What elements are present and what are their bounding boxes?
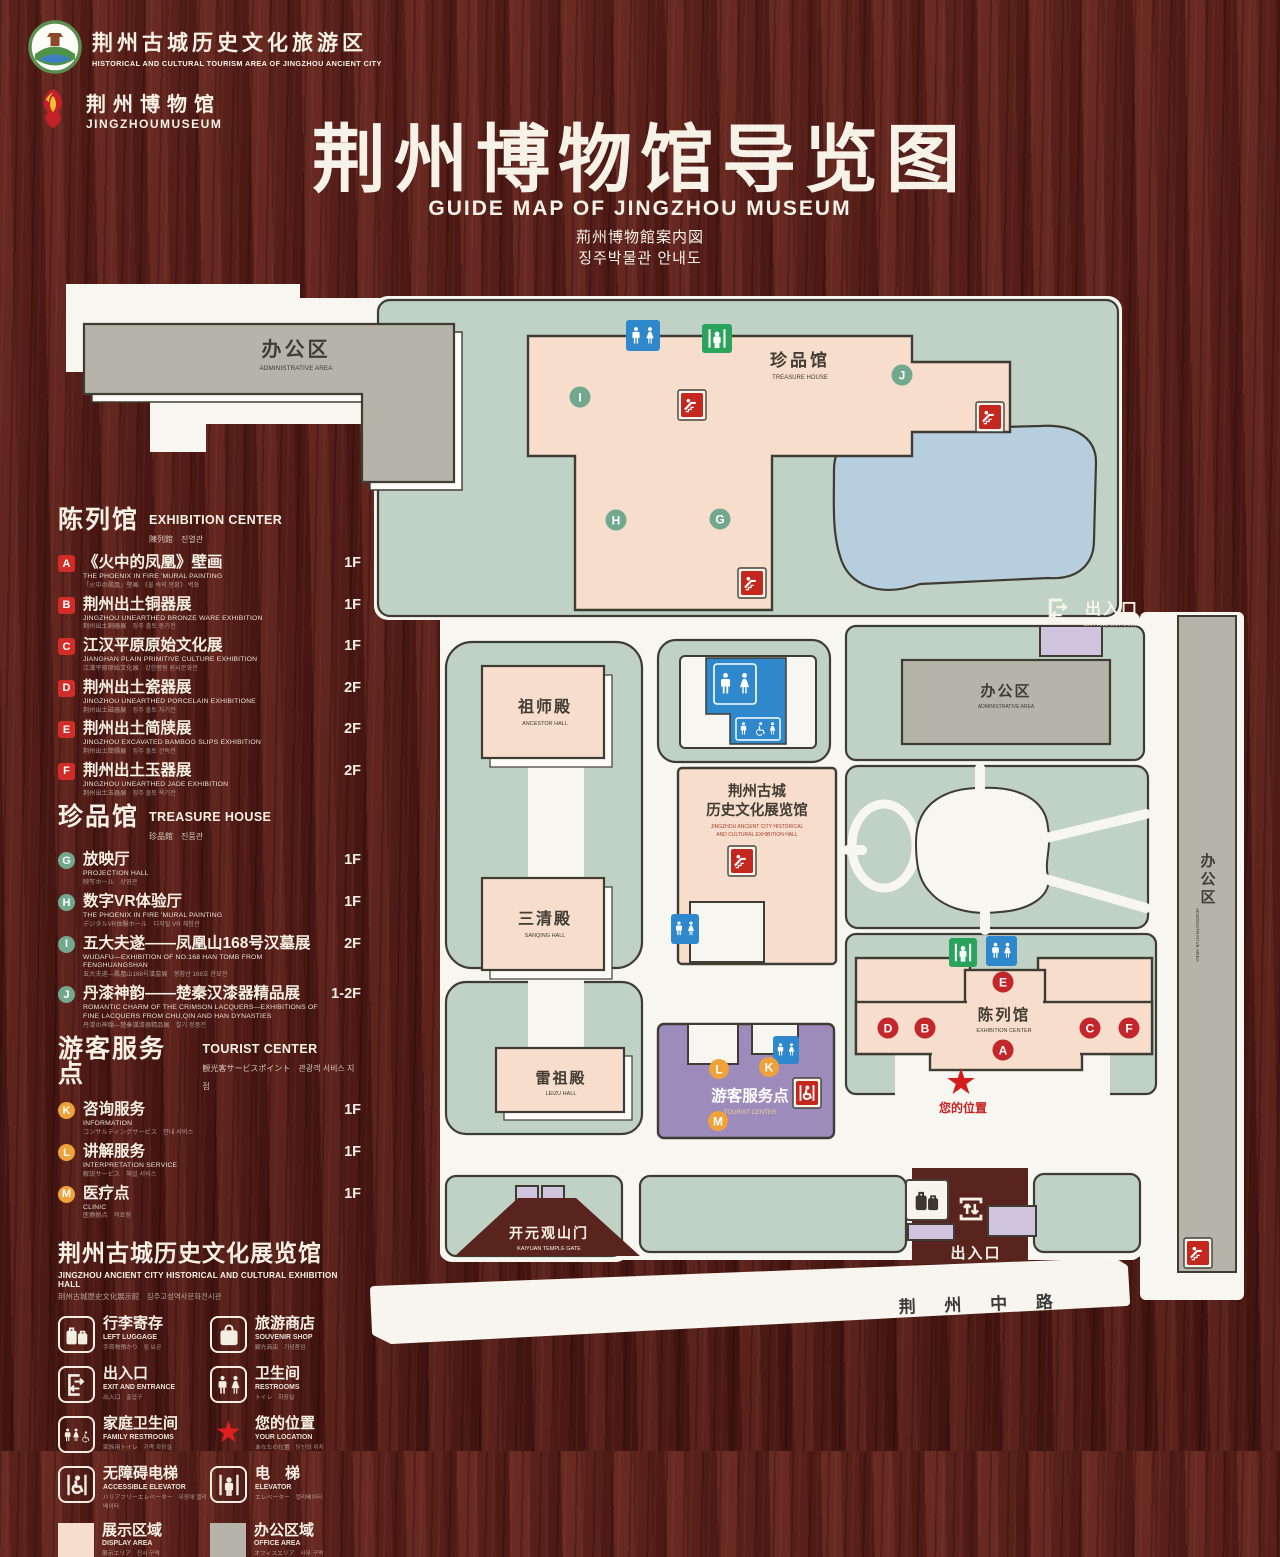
svg-text:ADMINISTRATIVE AREA: ADMINISTRATIVE AREA	[1194, 908, 1200, 963]
legend-item-i: I 五大夫遂——凤凰山168号汉墓展WUDAFU—EXHIBITION OF N…	[58, 935, 361, 979]
svg-text:L: L	[715, 1063, 722, 1077]
key-left-luggage: 行李寄存LEFT LUGGAGE手荷物預かり 짐 보관	[58, 1316, 210, 1353]
restroom-icon	[210, 1366, 247, 1403]
map-key-icons: 行李寄存LEFT LUGGAGE手荷物預かり 짐 보관 旅游商店SOUVENIR…	[58, 1316, 361, 1557]
escalator-icon	[738, 568, 766, 598]
svg-text:历史文化展览馆: 历史文化展览馆	[706, 801, 808, 819]
svg-text:EXIT AND ENTRANCE: EXIT AND ENTRANCE	[1084, 622, 1141, 628]
marker-D: D	[878, 1018, 899, 1039]
exhibition-center-label: 陈列馆	[978, 1005, 1031, 1024]
key-exit-entrance: 出入口EXIT AND ENTRANCE出入口 출입구	[58, 1366, 210, 1403]
admin-strip-building	[1178, 616, 1236, 1272]
legend-item-g: G 放映厅PROJECTION HALL映写ホール 상영관 1F	[58, 851, 361, 887]
key-elevator: 电 梯ELEVATORエレベーター 엘리베이터	[210, 1466, 360, 1510]
legend-item-e: E 荆州出土简牍展JINGZHOU EXCAVATED BAMBOO SLIPS…	[58, 720, 361, 756]
section-tourist-center: 游客服务点 TOURIST CENTER 観光客サービスポイント 관광객 서비스…	[58, 1037, 361, 1094]
marker-C: C	[1080, 1018, 1101, 1039]
svg-text:K: K	[765, 1061, 774, 1075]
admin-building-right	[902, 660, 1110, 744]
legend-panel: 陈列馆 EXHIBITION CENTER 陳列館 진열관 A 《火中的凤凰》壁…	[58, 500, 361, 1557]
key-family-restrooms: 家庭卫生间FAMILY RESTROOMS家族用トイレ 가족 화장실	[58, 1416, 210, 1453]
svg-text:F: F	[1125, 1022, 1132, 1036]
marker-G: G	[710, 509, 731, 530]
legend-item-b: B 荆州出土铜器展JINGZHOU UNEARTHED BRONZE WARE …	[58, 596, 361, 632]
family-restroom-icon	[58, 1416, 95, 1453]
marker-H: H	[606, 510, 627, 531]
key-restrooms: 卫生间RESTROOMSトイレ 화장실	[210, 1366, 360, 1403]
admin-right-label: 办公区	[980, 682, 1031, 700]
accessible-elevator-icon	[793, 1078, 821, 1108]
legend-item-h: H 数字VR体验厅THE PHOENIX IN FIRE 'MURAL PAIN…	[58, 893, 361, 929]
escalator-icon	[976, 402, 1004, 432]
marker-K: K	[759, 1057, 779, 1077]
svg-text:H: H	[612, 514, 621, 528]
marker-E: E	[993, 972, 1014, 993]
your-location-star-icon: ★	[210, 1416, 247, 1450]
svg-text:D: D	[884, 1022, 893, 1036]
svg-text:TREASURE HOUSE: TREASURE HOUSE	[772, 375, 828, 381]
exit-icon	[58, 1366, 95, 1403]
marker-I: I	[570, 387, 591, 408]
legend-item-c: C 江汉平原原始文化展JIANGHAN PLAIN PRIMITIVE CULT…	[58, 637, 361, 673]
your-location-label: 您的位置	[939, 1100, 987, 1115]
jz-hall-note: 荆州古城历史文化展览馆 JINGZHOU ANCIENT CITY HISTOR…	[58, 1234, 361, 1302]
section-exhibition-center: 陈列馆 EXHIBITION CENTER 陳列館 진열관	[58, 508, 361, 547]
exit-top-label: 出入口	[1085, 599, 1139, 618]
svg-text:A: A	[999, 1044, 1008, 1058]
corridor	[528, 756, 584, 878]
svg-text:AND CULTURAL EXHIBITION HALL: AND CULTURAL EXHIBITION HALL	[716, 832, 798, 838]
svg-text:KAIYUAN TEMPLE GATE: KAIYUAN TEMPLE GATE	[517, 1246, 581, 1252]
legend-item-f: F 荆州出土玉器展JINGZHOU UNEARTHED JADE EXHIBIT…	[58, 762, 361, 798]
key-your-location: ★ 您的位置YOUR LOCATIONあなたの位置 당신의 위치	[210, 1416, 360, 1453]
tourist-center-label: 游客服务点	[711, 1086, 789, 1105]
legend-item-k: K 咨询服务INFORMATIONコンサルティングサービス 안내 서비스 1F	[58, 1101, 361, 1137]
kaiyuan-gate-label: 开元观山门	[509, 1225, 589, 1241]
left-luggage-icon	[58, 1316, 95, 1353]
display-area-swatch	[58, 1523, 94, 1557]
legend-item-m: M 医疗点CLINIC医療拠点 의료점 1F	[58, 1185, 361, 1221]
section-title: 陈列馆	[58, 508, 139, 533]
jz-hall-label: 荆州古城	[728, 782, 786, 800]
svg-text:ADMINISTRATIVE AREA: ADMINISTRATIVE AREA	[259, 365, 333, 372]
restroom-icon	[671, 914, 699, 944]
svg-text:ADMINISTRATIVE AREA: ADMINISTRATIVE AREA	[978, 704, 1035, 710]
left-luggage-icon	[906, 1180, 948, 1220]
admin-tl-label: 办公区	[262, 337, 331, 361]
leizu-hall-label: 雷祖殿	[535, 1069, 586, 1087]
legend-item-l: L 讲解服务INTERPRETATION SERVICE解説サービス 해설 서비…	[58, 1143, 361, 1179]
svg-text:SANQING HALL: SANQING HALL	[525, 933, 566, 939]
office-area-swatch	[210, 1523, 246, 1557]
restroom-icon	[773, 1036, 799, 1064]
treasure-label: 珍品馆	[770, 350, 830, 370]
souvenir-shop-icon	[210, 1316, 247, 1353]
restroom-icon	[986, 936, 1017, 966]
marker-L: L	[709, 1059, 729, 1079]
key-accessible-elevator: 无障碍电梯ACCESSIBLE ELEVATORバリアフリーエレベーター 무장애…	[58, 1466, 210, 1510]
your-location-star-icon: ★	[945, 1061, 977, 1102]
svg-text:C: C	[1086, 1022, 1095, 1036]
svg-text:JINGZHOU ANCIENT CITY HISTORIC: JINGZHOU ANCIENT CITY HISTORICAL	[711, 824, 804, 830]
svg-text:B: B	[921, 1022, 930, 1036]
item-badge: A	[58, 555, 75, 572]
svg-text:TOURIST CENTER: TOURIST CENTER	[724, 1110, 777, 1116]
marker-F: F	[1119, 1018, 1140, 1039]
floor-label: 1F	[344, 555, 361, 571]
svg-text:EXHIBITION CENTER: EXHIBITION CENTER	[976, 1028, 1031, 1034]
svg-text:G: G	[715, 513, 724, 527]
marker-B: B	[915, 1018, 936, 1039]
escalator-icon	[1184, 1238, 1212, 1268]
svg-text:J: J	[899, 369, 906, 383]
sanqing-hall-label: 三清殿	[518, 910, 572, 928]
legend-item-j: J 丹漆神韵——楚秦汉漆器精品展ROMANTIC CHARM OF THE CR…	[58, 985, 361, 1029]
legend-item-a: A 《火中的凤凰》壁画THE PHOENIX IN FIRE 'MURAL PA…	[58, 554, 361, 590]
marker-A: A	[993, 1040, 1014, 1061]
legend-item-d: D 荆州出土瓷器展JINGZHOU UNEARTHED PORCELAIN EX…	[58, 679, 361, 715]
key-office-area: 办公区域OFFICE AREAオフィスエリア 사무 구역	[210, 1523, 360, 1557]
svg-text:I: I	[578, 391, 581, 405]
svg-text:E: E	[999, 976, 1007, 990]
elevator-icon	[949, 938, 977, 967]
key-souvenir-shop: 旅游商店SOUVENIR SHOP観光商店 기념품점	[210, 1316, 360, 1353]
key-display-area: 展示区域DISPLAY AREA展示エリア 전시 구역	[58, 1523, 210, 1557]
svg-text:M: M	[713, 1115, 723, 1129]
admin-strip-label: 办公区	[1199, 852, 1216, 907]
section-treasure-house: 珍品馆 TREASURE HOUSE 珍品館 진품관	[58, 805, 361, 844]
escalator-icon	[728, 846, 756, 876]
ancestor-hall-label: 祖师殿	[517, 697, 572, 716]
svg-text:ANCESTOR HALL: ANCESTOR HALL	[522, 721, 568, 727]
marker-J: J	[892, 365, 913, 386]
elevator-icon	[702, 324, 732, 353]
exit-bottom-label: 出入口	[950, 1244, 1001, 1262]
escalator-icon	[678, 390, 706, 420]
svg-text:LEIZU HALL: LEIZU HALL	[546, 1091, 577, 1097]
elevator-icon	[210, 1466, 247, 1503]
svg-text:EXIT AND ENTRANCE: EXIT AND ENTRANCE	[948, 1266, 1005, 1272]
taoist-halls	[482, 666, 632, 1120]
accessible-elevator-icon	[58, 1466, 95, 1503]
restroom-icon	[626, 320, 660, 351]
